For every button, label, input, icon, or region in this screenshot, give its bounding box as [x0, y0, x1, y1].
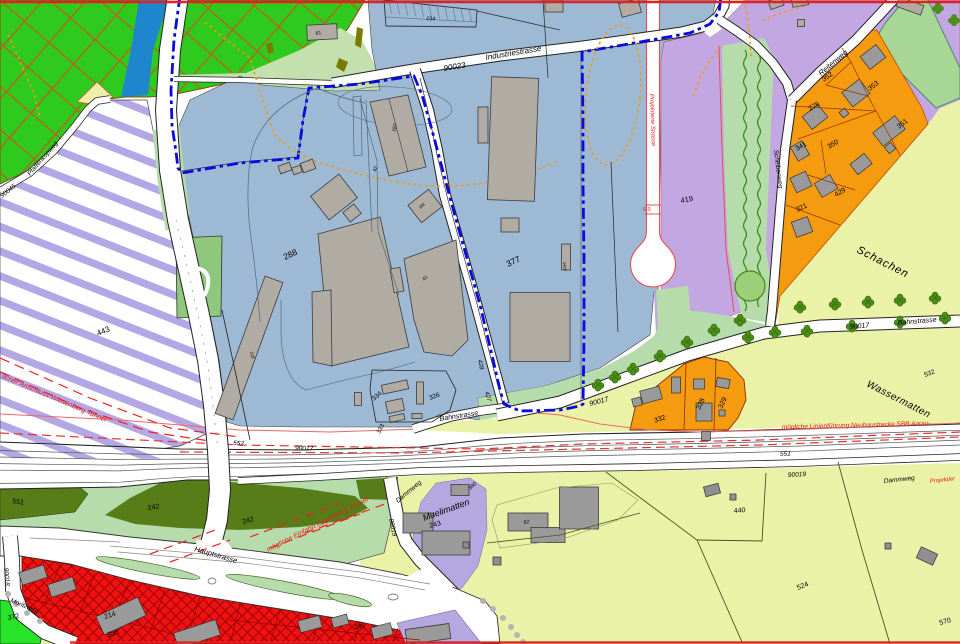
svg-text:1424: 1424	[562, 262, 568, 272]
svg-text:440: 440	[734, 507, 746, 515]
svg-text:90019: 90019	[788, 471, 807, 479]
svg-text:551: 551	[780, 451, 791, 458]
svg-text:6.0: 6.0	[643, 207, 651, 213]
svg-text:552: 552	[233, 440, 245, 448]
svg-text:154: 154	[426, 16, 436, 23]
svg-text:90017: 90017	[295, 445, 314, 453]
